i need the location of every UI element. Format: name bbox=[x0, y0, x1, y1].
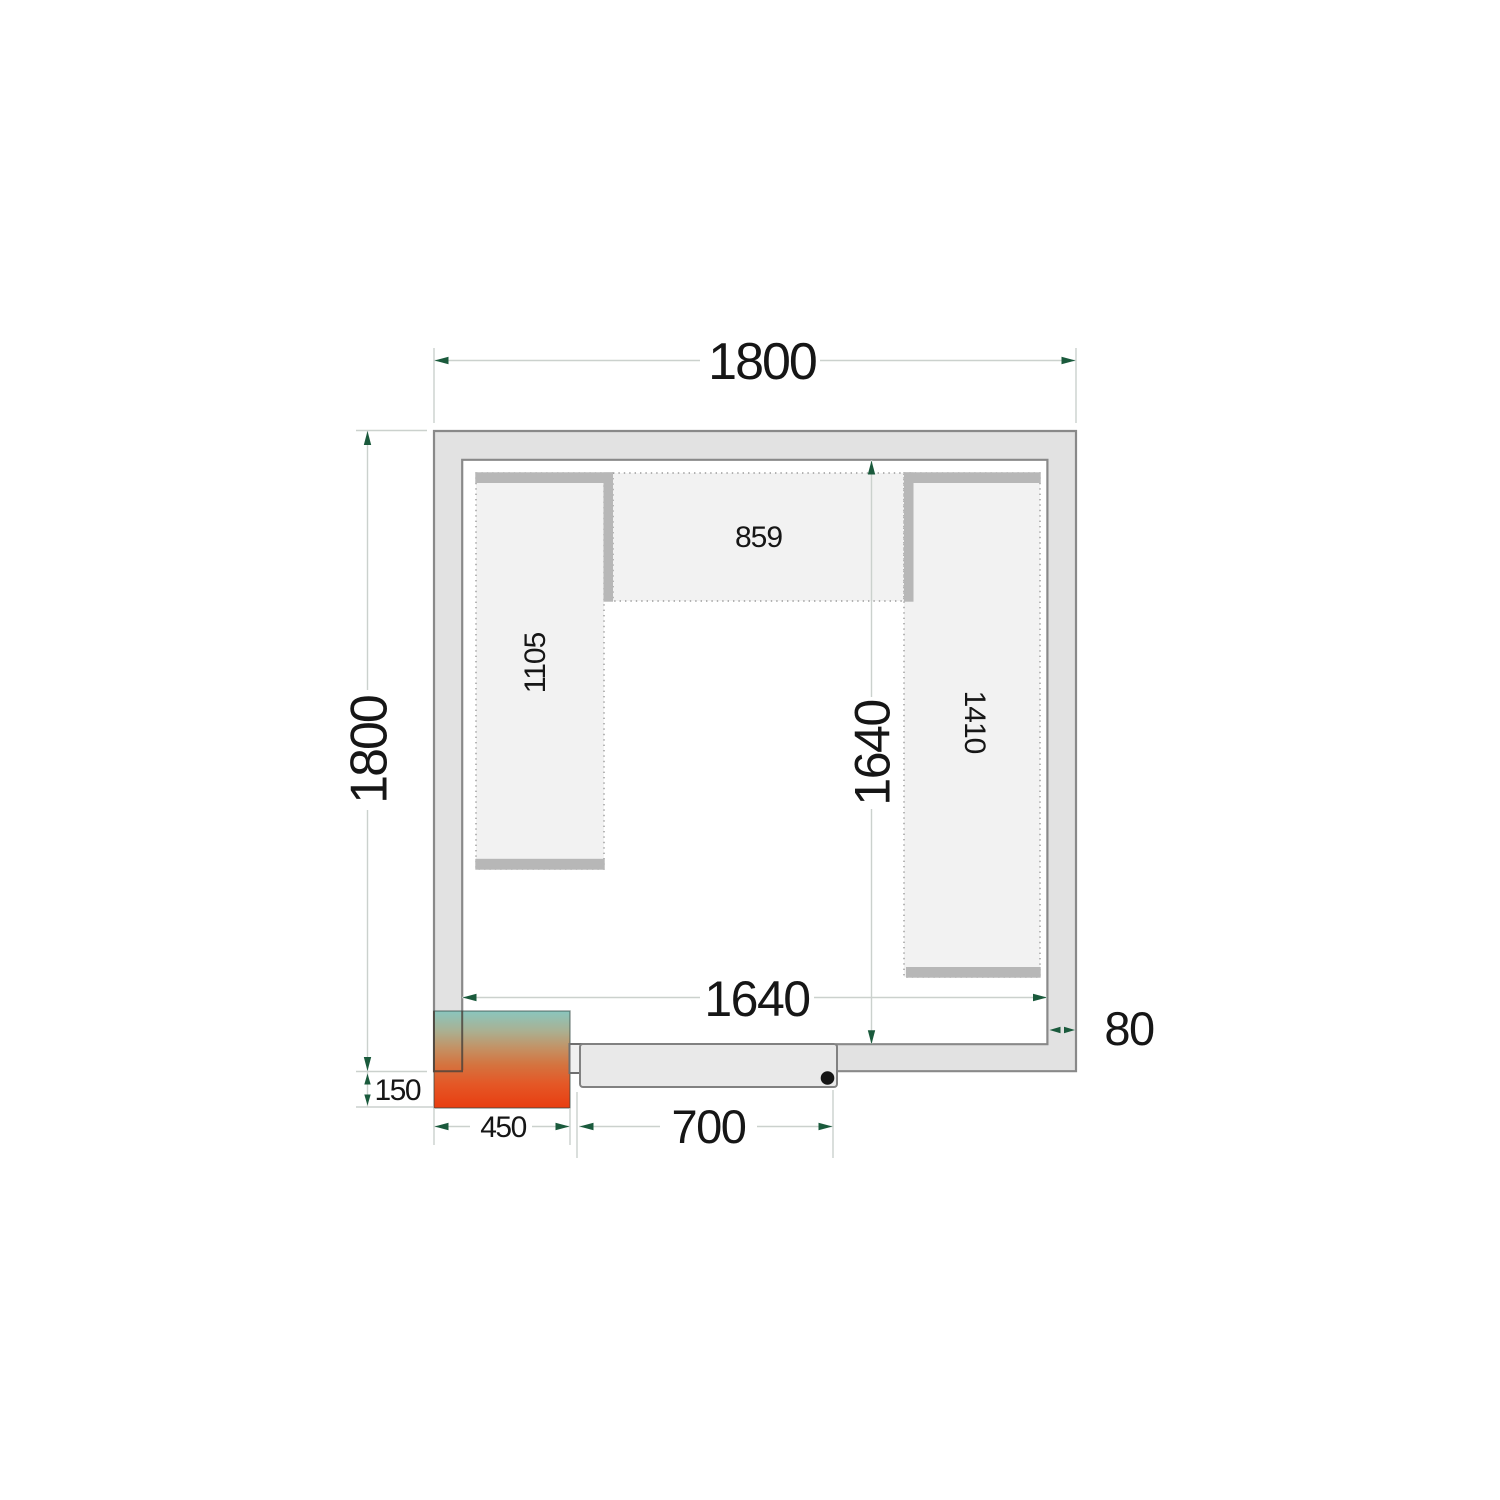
svg-text:1640: 1640 bbox=[845, 700, 901, 805]
svg-text:150: 150 bbox=[375, 1074, 421, 1107]
svg-text:450: 450 bbox=[480, 1111, 526, 1144]
svg-text:1800: 1800 bbox=[341, 696, 399, 804]
svg-text:1410: 1410 bbox=[958, 691, 991, 754]
svg-text:1800: 1800 bbox=[708, 333, 816, 391]
svg-text:1105: 1105 bbox=[519, 632, 552, 693]
svg-text:700: 700 bbox=[672, 1100, 746, 1153]
svg-text:1640: 1640 bbox=[704, 971, 809, 1027]
svg-text:80: 80 bbox=[1104, 1002, 1154, 1055]
svg-text:859: 859 bbox=[735, 521, 782, 554]
